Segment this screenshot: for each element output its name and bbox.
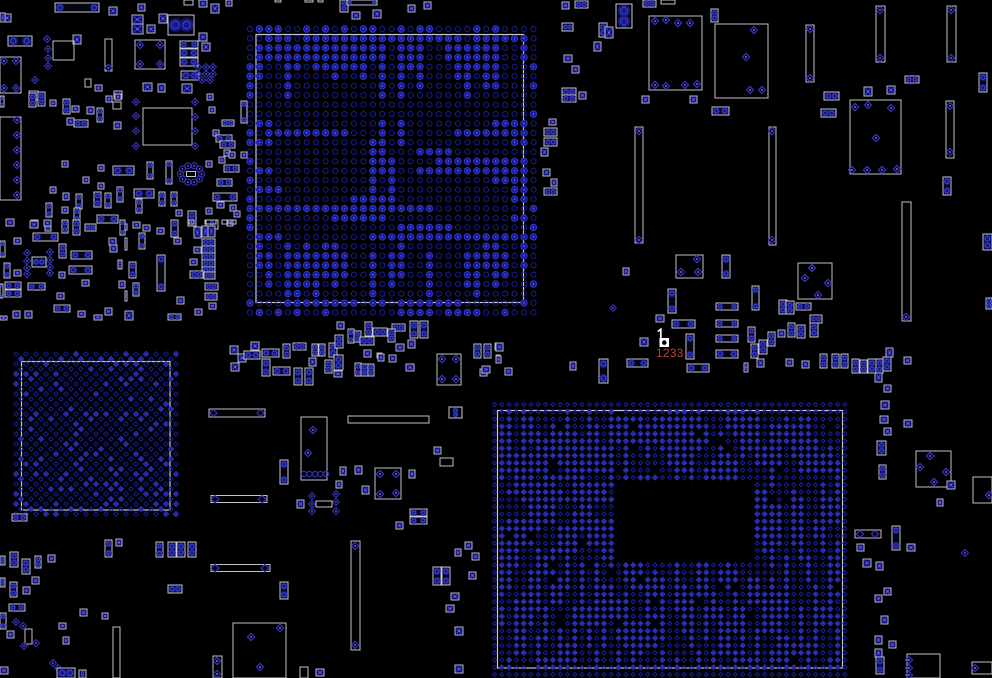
- svg-text:1233: 1233: [656, 346, 684, 360]
